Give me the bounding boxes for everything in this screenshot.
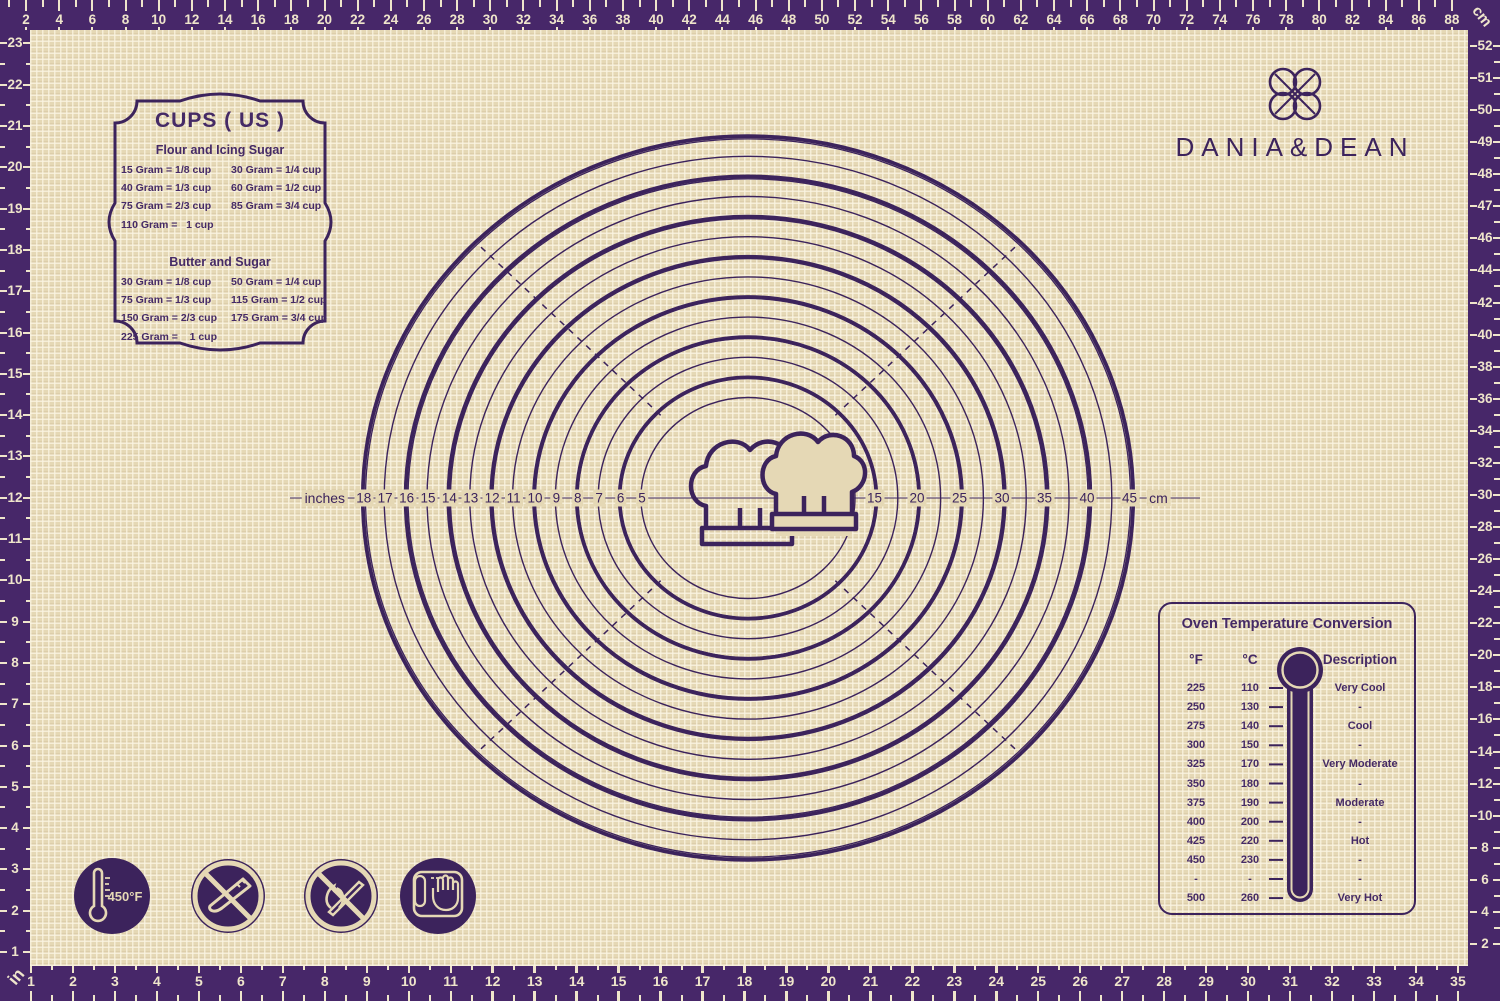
cups-conversion-value: 30 Gram = 1/4 cup	[231, 164, 339, 176]
ruler-tick	[219, 966, 221, 970]
cm-circle-label: 35	[1035, 490, 1054, 507]
cups-conversion-value: 150 Gram = 2/3 cup	[121, 312, 229, 324]
ruler-tick	[723, 966, 725, 970]
ruler-tick	[575, 966, 577, 973]
ruler-tick	[26, 63, 30, 65]
ruler-number: 18	[1470, 680, 1500, 694]
ruler-tick	[827, 991, 829, 1001]
oven-panel-title: Oven Temperature Conversion	[1160, 616, 1414, 632]
ruler-number: 19	[0, 202, 30, 216]
ruler-tick	[125, 0, 127, 11]
ruler-tick	[1418, 27, 1420, 30]
ruler-tick	[911, 991, 913, 1001]
ruler-tick	[701, 966, 703, 973]
ruler-tick	[1494, 927, 1500, 929]
ruler-tick	[491, 966, 493, 973]
ruler-tick	[1351, 0, 1353, 11]
ruler-number: 22	[0, 78, 30, 92]
no-knife-icon	[188, 856, 268, 936]
ruler-tick	[1494, 574, 1500, 576]
ruler-number: 17	[0, 284, 30, 298]
ruler-number: 86	[1405, 13, 1433, 27]
ruler-tick	[1079, 991, 1081, 1001]
cups-conversion-value: 30 Gram = 1/8 cup	[121, 276, 229, 288]
ruler-tick	[1121, 991, 1123, 1001]
ruler-tick	[688, 27, 690, 30]
ruler-tick	[0, 641, 5, 643]
ruler-tick	[911, 966, 913, 973]
ruler-tick	[1385, 27, 1387, 30]
ruler-tick	[1494, 638, 1500, 640]
ruler-tick	[1310, 966, 1312, 970]
ruler-tick	[506, 0, 508, 7]
ruler-tick	[1219, 27, 1221, 30]
ruler-tick	[589, 27, 591, 30]
ruler-tick	[970, 0, 972, 7]
ruler-number: 82	[1338, 13, 1366, 27]
ruler-number: 34	[1470, 424, 1500, 438]
ruler-tick	[639, 0, 641, 7]
ruler-tick	[788, 27, 790, 30]
ruler-tick	[303, 966, 305, 970]
ruler-tick	[489, 0, 491, 11]
cups-conversion-value: 15 Gram = 1/8 cup	[121, 164, 229, 176]
ruler-tick	[974, 966, 976, 970]
ruler-tick	[854, 27, 856, 30]
ruler-tick	[1163, 991, 1165, 1001]
ruler-number: 17	[689, 974, 717, 988]
ruler-tick	[471, 995, 473, 1001]
ruler-tick	[158, 0, 160, 11]
ruler-number: 14	[563, 974, 591, 988]
ruler-tick	[51, 966, 53, 970]
ruler-tick	[0, 765, 5, 767]
ruler-tick	[533, 966, 535, 973]
inch-circle-label: 15	[418, 490, 437, 507]
ruler-tick	[1268, 995, 1270, 1001]
ruler-tick	[605, 0, 607, 7]
brand-wordmark: DANIA&DEAN	[1130, 132, 1460, 163]
ruler-tick	[58, 0, 60, 11]
ruler-tick	[26, 848, 30, 850]
ruler-tick	[821, 27, 823, 30]
ruler-tick	[1153, 27, 1155, 30]
cups-conversion-value: 225 Gram = 1 cup	[121, 331, 229, 343]
cups-conversion-value: 85 Gram = 3/4 cup	[231, 200, 339, 212]
ruler-number: 7	[0, 697, 30, 711]
ruler-tick	[0, 228, 5, 230]
ruler-number: 24	[377, 13, 405, 27]
ruler-number: 20	[1470, 648, 1500, 662]
ruler-tick	[555, 966, 557, 970]
ruler-tick	[755, 0, 757, 11]
ruler-tick	[0, 600, 5, 602]
ruler-tick	[240, 966, 242, 973]
ruler-tick	[1494, 478, 1500, 480]
ruler-tick	[1368, 0, 1370, 7]
ruler-number: 33	[1360, 974, 1388, 988]
ruler-tick	[1418, 0, 1420, 11]
ruler-tick	[0, 889, 5, 891]
ruler-number: 27	[1108, 974, 1136, 988]
ruler-tick	[743, 966, 745, 973]
brand-emblem-icon	[1255, 60, 1335, 130]
cups-conversion-value: 115 Gram = 1/2 cup	[231, 294, 339, 306]
ruler-tick	[1335, 0, 1337, 7]
inch-circle-label: 18	[354, 490, 373, 507]
ruler-number: 16	[1470, 712, 1500, 726]
ruler-number: 28	[443, 13, 471, 27]
ruler-tick	[0, 104, 5, 106]
ruler-number: 20	[814, 974, 842, 988]
ruler-tick	[1373, 966, 1375, 973]
ruler-tick	[1058, 966, 1060, 970]
ruler-tick	[1070, 0, 1072, 7]
ruler-tick	[282, 966, 284, 973]
ruler-tick	[114, 991, 116, 1001]
ruler-number: 10	[145, 13, 173, 27]
ruler-tick	[491, 991, 493, 1001]
ruler-number: 25	[1024, 974, 1052, 988]
ruler-tick	[282, 991, 284, 1001]
ruler-number: 40	[642, 13, 670, 27]
ruler-tick	[0, 724, 5, 726]
ruler-tick	[1252, 0, 1254, 11]
ruler-number: 36	[576, 13, 604, 27]
ruler-number: 84	[1372, 13, 1400, 27]
ruler-tick	[1494, 542, 1500, 544]
oven-f-value: 450	[1174, 854, 1218, 866]
ruler-tick	[0, 848, 5, 850]
ruler-tick	[1494, 414, 1500, 416]
ruler-tick	[72, 966, 74, 973]
cm-circle-label: 15	[865, 490, 884, 507]
ruler-tick	[373, 0, 375, 7]
ruler-number: 21	[856, 974, 884, 988]
ruler-tick	[1494, 606, 1500, 608]
ruler-tick	[827, 966, 829, 973]
ruler-number: 14	[211, 13, 239, 27]
ruler-number: 34	[543, 13, 571, 27]
ruler-tick	[764, 995, 766, 1001]
ruler-number: 2	[59, 974, 87, 988]
ruler-tick	[26, 270, 30, 272]
ruler-tick	[904, 0, 906, 7]
ruler-tick	[26, 930, 30, 932]
ruler-number: 8	[1470, 841, 1500, 855]
ruler-number: 50	[808, 13, 836, 27]
oven-f-value: 300	[1174, 739, 1218, 751]
brand-block: DANIA&DEAN	[1130, 60, 1460, 170]
ruler-tick	[848, 966, 850, 970]
ruler-tick	[932, 995, 934, 1001]
ruler-tick	[974, 995, 976, 1001]
chef-hats-icon	[648, 418, 868, 608]
ruler-number: 2	[1470, 937, 1500, 951]
ruler-number: 12	[0, 491, 30, 505]
ruler-tick	[1494, 446, 1500, 448]
ruler-tick	[837, 0, 839, 7]
ruler-tick	[1318, 0, 1320, 11]
ruler-tick	[1036, 0, 1038, 7]
ruler-tick	[1119, 27, 1121, 30]
pastry-mat: inches1817161514131211109876515202530354…	[0, 0, 1500, 1001]
ruler-tick	[1268, 966, 1270, 970]
ruler-tick	[513, 995, 515, 1001]
ruler-tick	[1494, 253, 1500, 255]
ruler-tick	[1252, 27, 1254, 30]
ruler-number: 5	[185, 974, 213, 988]
ruler-number: 20	[311, 13, 339, 27]
ruler-tick	[1226, 966, 1228, 970]
ruler-number: 8	[112, 13, 140, 27]
left-ruler-inches: 2322212019181716151413121110987654321	[0, 0, 30, 1001]
ruler-number: 6	[1470, 873, 1500, 887]
ruler-tick	[1494, 831, 1500, 833]
ruler-tick	[1351, 27, 1353, 30]
ruler-number: 12	[1470, 777, 1500, 791]
ruler-tick	[324, 966, 326, 973]
ruler-tick	[1415, 966, 1417, 973]
ruler-number: 32	[1318, 974, 1346, 988]
ruler-number: 60	[974, 13, 1002, 27]
ruler-number: 42	[675, 13, 703, 27]
ruler-tick	[1053, 0, 1055, 11]
ruler-number: 12	[479, 974, 507, 988]
oven-f-value: 350	[1174, 778, 1218, 790]
ruler-tick	[473, 0, 475, 7]
ruler-number: 18	[0, 243, 30, 257]
ruler-tick	[0, 476, 5, 478]
ruler-tick	[572, 0, 574, 7]
thermometer-graphic	[1265, 642, 1335, 922]
ruler-tick	[738, 0, 740, 7]
ruler-tick	[0, 559, 5, 561]
ruler-tick	[177, 966, 179, 970]
ruler-tick	[1186, 0, 1188, 11]
ruler-number: 76	[1239, 13, 1267, 27]
ruler-tick	[345, 995, 347, 1001]
ruler-tick	[1494, 670, 1500, 672]
ruler-tick	[617, 991, 619, 1001]
ruler-tick	[219, 995, 221, 1001]
ruler-tick	[721, 0, 723, 11]
cups-panel-title: CUPS ( US )	[95, 109, 345, 133]
ruler-number: 70	[1140, 13, 1168, 27]
ruler-number: 20	[0, 160, 30, 174]
ruler-tick	[1058, 995, 1060, 1001]
ruler-number: 12	[178, 13, 206, 27]
ruler-tick	[307, 0, 309, 7]
ruler-tick	[156, 966, 158, 973]
hand-wash-icon	[398, 856, 478, 936]
ruler-tick	[1119, 0, 1121, 11]
ruler-tick	[489, 27, 491, 30]
ruler-number: 10	[1470, 809, 1500, 823]
ruler-tick	[91, 0, 93, 11]
ruler-tick	[345, 966, 347, 970]
ruler-number: 26	[1470, 552, 1500, 566]
ruler-tick	[1331, 966, 1333, 973]
ruler-number: 21	[0, 119, 30, 133]
ruler-tick	[450, 966, 452, 973]
ruler-number: 4	[0, 821, 30, 835]
ruler-tick	[806, 995, 808, 1001]
ruler-tick	[659, 966, 661, 973]
ruler-tick	[456, 27, 458, 30]
ruler-number: 16	[244, 13, 272, 27]
ruler-number: 6	[0, 739, 30, 753]
no-open-flame-icon	[301, 856, 381, 936]
ruler-tick	[0, 146, 5, 148]
ruler-tick	[177, 995, 179, 1001]
ruler-tick	[639, 966, 641, 970]
ruler-tick	[26, 641, 30, 643]
ruler-tick	[0, 393, 5, 395]
ruler-number: 44	[1470, 263, 1500, 277]
ruler-number: 15	[0, 367, 30, 381]
ruler-tick	[26, 187, 30, 189]
ruler-tick	[785, 966, 787, 973]
ruler-number: 47	[1470, 199, 1500, 213]
ruler-tick	[1457, 966, 1459, 973]
ruler-tick	[1219, 0, 1221, 11]
ruler-number: 13	[521, 974, 549, 988]
cups-conversion-value: 110 Gram = 1 cup	[121, 219, 229, 231]
ruler-tick	[158, 27, 160, 30]
ruler-tick	[688, 0, 690, 11]
ruler-number: 62	[1007, 13, 1035, 27]
ruler-tick	[1494, 318, 1500, 320]
ruler-tick	[224, 27, 226, 30]
ruler-tick	[539, 0, 541, 7]
ruler-number: 8	[311, 974, 339, 988]
oven-f-value: -	[1174, 873, 1218, 885]
ruler-tick	[26, 765, 30, 767]
ruler-tick	[1494, 157, 1500, 159]
ruler-tick	[261, 966, 263, 970]
ruler-tick	[953, 991, 955, 1001]
ruler-number: 52	[841, 13, 869, 27]
ruler-number: 38	[1470, 360, 1500, 374]
ruler-tick	[290, 27, 292, 30]
ruler-tick	[471, 966, 473, 970]
ruler-number: 32	[1470, 456, 1500, 470]
ruler-tick	[1494, 863, 1500, 865]
ruler-tick	[1079, 966, 1081, 973]
ruler-tick	[1494, 799, 1500, 801]
ruler-tick	[324, 991, 326, 1001]
ruler-tick	[274, 0, 276, 7]
ruler-number: 23	[940, 974, 968, 988]
ruler-tick	[785, 991, 787, 1001]
ruler-tick	[26, 104, 30, 106]
ruler-tick	[995, 991, 997, 1001]
ruler-tick	[1494, 350, 1500, 352]
ruler-tick	[1331, 991, 1333, 1001]
ruler-number: 10	[395, 974, 423, 988]
inch-circle-label: 10	[525, 490, 544, 507]
ruler-number: 13	[0, 449, 30, 463]
ruler-tick	[1184, 966, 1186, 970]
ruler-tick	[1142, 966, 1144, 970]
oven-column-header: °F	[1174, 652, 1218, 667]
ruler-tick	[1310, 995, 1312, 1001]
ruler-tick	[198, 991, 200, 1001]
cups-conversion-value: 75 Gram = 2/3 cup	[121, 200, 229, 212]
ruler-tick	[954, 0, 956, 11]
ruler-tick	[198, 966, 200, 973]
ruler-number: 46	[742, 13, 770, 27]
ruler-tick	[108, 0, 110, 7]
ruler-tick	[995, 966, 997, 973]
ruler-number: 31	[1276, 974, 1304, 988]
ruler-tick	[723, 995, 725, 1001]
inch-circle-label: 13	[461, 490, 480, 507]
oven-f-value: 275	[1174, 720, 1218, 732]
ruler-tick	[1289, 966, 1291, 973]
ruler-tick	[387, 995, 389, 1001]
ruler-tick	[30, 966, 32, 973]
ruler-tick	[1451, 27, 1453, 30]
ruler-tick	[406, 0, 408, 7]
ruler-tick	[1037, 966, 1039, 973]
oven-f-value: 500	[1174, 892, 1218, 904]
ruler-tick	[1269, 0, 1271, 7]
ruler-tick	[932, 966, 934, 970]
ruler-tick	[1053, 27, 1055, 30]
ruler-tick	[1457, 991, 1459, 1001]
ruler-tick	[1394, 966, 1396, 970]
ruler-tick	[72, 991, 74, 1001]
ruler-number: 16	[647, 974, 675, 988]
ruler-tick	[1235, 0, 1237, 7]
ruler-tick	[340, 0, 342, 7]
ruler-tick	[141, 0, 143, 7]
ruler-number: 78	[1272, 13, 1300, 27]
ruler-tick	[655, 27, 657, 30]
ruler-tick	[357, 0, 359, 11]
oven-temperature-panel: Oven Temperature Conversion °F°CDescript…	[1158, 602, 1416, 915]
ruler-tick	[556, 0, 558, 11]
ruler-tick	[26, 806, 30, 808]
ruler-tick	[26, 517, 30, 519]
ruler-tick	[261, 995, 263, 1001]
inch-circle-label: 6	[615, 490, 627, 507]
ruler-tick	[1285, 0, 1287, 11]
ruler-number: 68	[1106, 13, 1134, 27]
ruler-number: 38	[609, 13, 637, 27]
ruler-tick	[987, 27, 989, 30]
ruler-tick	[26, 683, 30, 685]
ruler-tick	[26, 559, 30, 561]
ruler-tick	[125, 27, 127, 30]
ruler-number: 64	[1040, 13, 1068, 27]
ruler-tick	[241, 0, 243, 7]
ruler-tick	[755, 27, 757, 30]
ruler-tick	[522, 0, 524, 11]
ruler-number: 51	[1470, 71, 1500, 85]
ruler-tick	[788, 0, 790, 11]
ruler-tick	[890, 966, 892, 970]
ruler-tick	[26, 352, 30, 354]
ruler-tick	[1016, 966, 1018, 970]
ruler-tick	[135, 966, 137, 970]
ruler-number: 48	[775, 13, 803, 27]
oven-f-value: 400	[1174, 816, 1218, 828]
inch-circle-label: 14	[440, 490, 459, 507]
ruler-number: 14	[0, 408, 30, 422]
